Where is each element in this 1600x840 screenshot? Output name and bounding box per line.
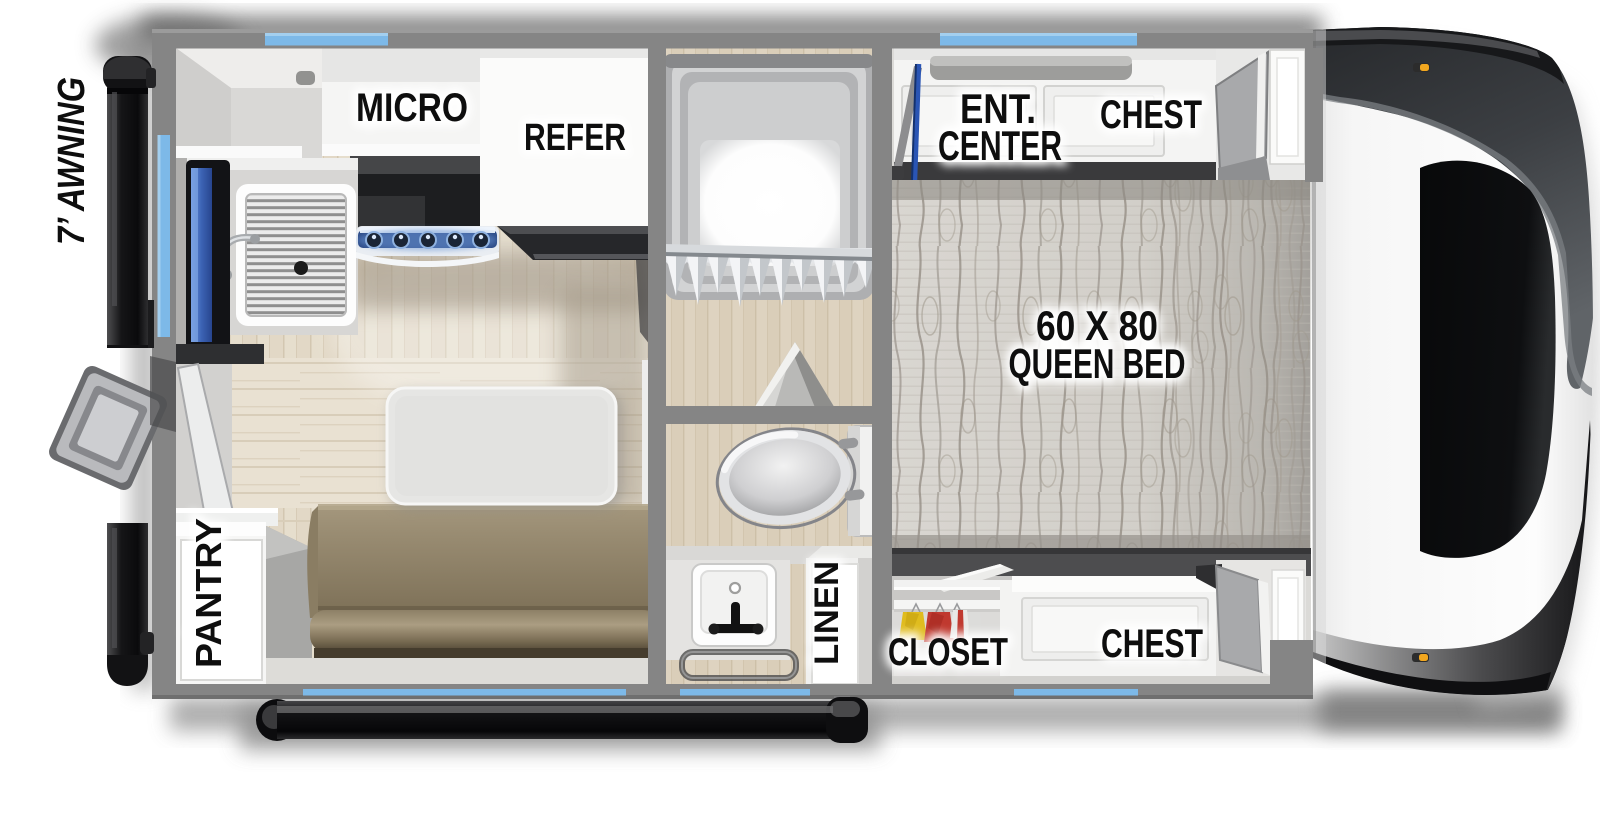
svg-text:CHEST: CHEST bbox=[1101, 622, 1203, 666]
svg-text:MICRO: MICRO bbox=[356, 86, 468, 130]
svg-text:QUEEN BED: QUEEN BED bbox=[1009, 340, 1186, 387]
svg-text:CLOSET: CLOSET bbox=[888, 631, 1008, 674]
svg-text:LINEN: LINEN bbox=[808, 561, 846, 665]
svg-text:CENTER: CENTER bbox=[938, 122, 1062, 169]
svg-text:7’ AWNING: 7’ AWNING bbox=[51, 77, 93, 245]
svg-text:REFER: REFER bbox=[524, 117, 626, 159]
svg-text:CHEST: CHEST bbox=[1100, 93, 1202, 137]
svg-text:PANTRY: PANTRY bbox=[188, 518, 229, 668]
